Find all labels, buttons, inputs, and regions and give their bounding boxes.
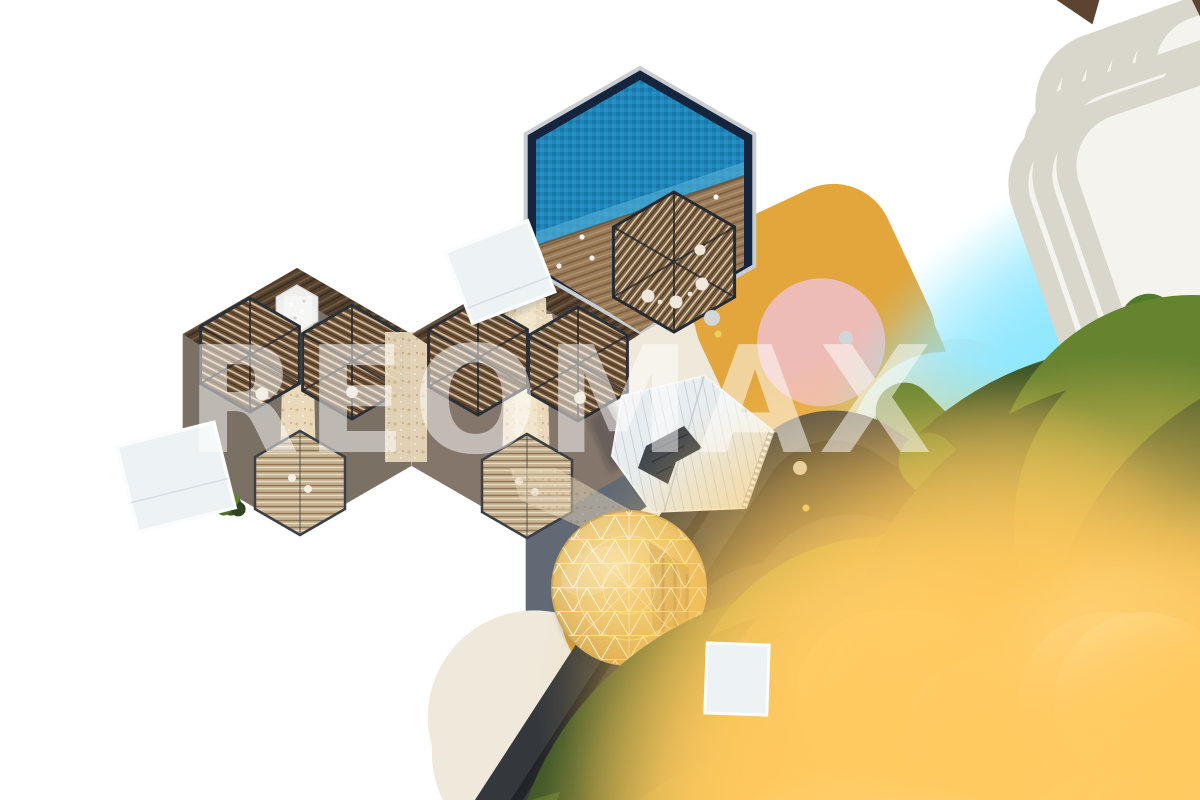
watermark-text: REOMAX	[186, 315, 939, 487]
render-canvas: West dining pavilions Central dining pav…	[0, 0, 1200, 800]
entrance-canopy-south: Entrance canopy	[705, 643, 769, 715]
masterplan-svg: West dining pavilions Central dining pav…	[0, 0, 1200, 800]
